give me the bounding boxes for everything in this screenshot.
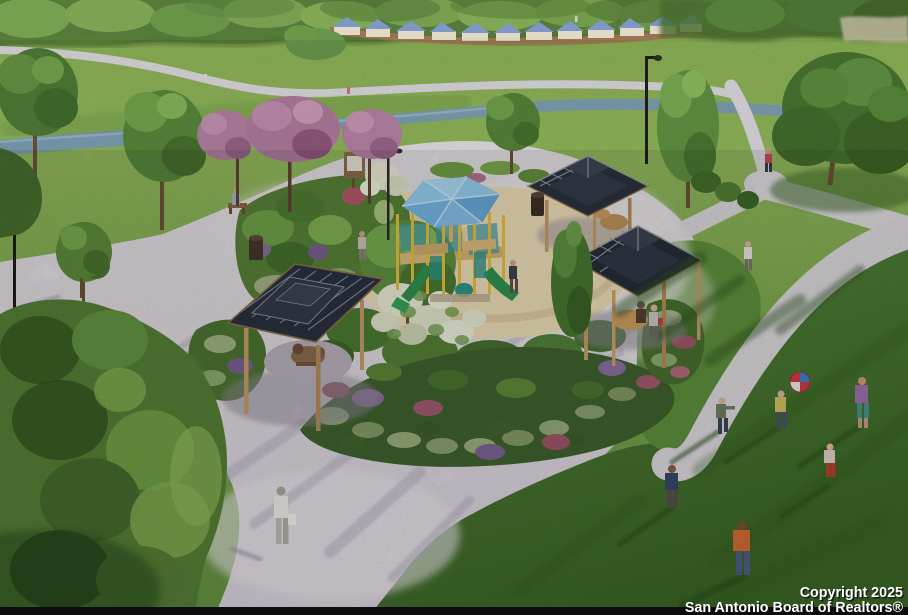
svg-text:Copyright 2025: Copyright 2025 — [800, 585, 903, 601]
svg-text:San Antonio Board of Realtors®: San Antonio Board of Realtors® — [685, 600, 904, 615]
